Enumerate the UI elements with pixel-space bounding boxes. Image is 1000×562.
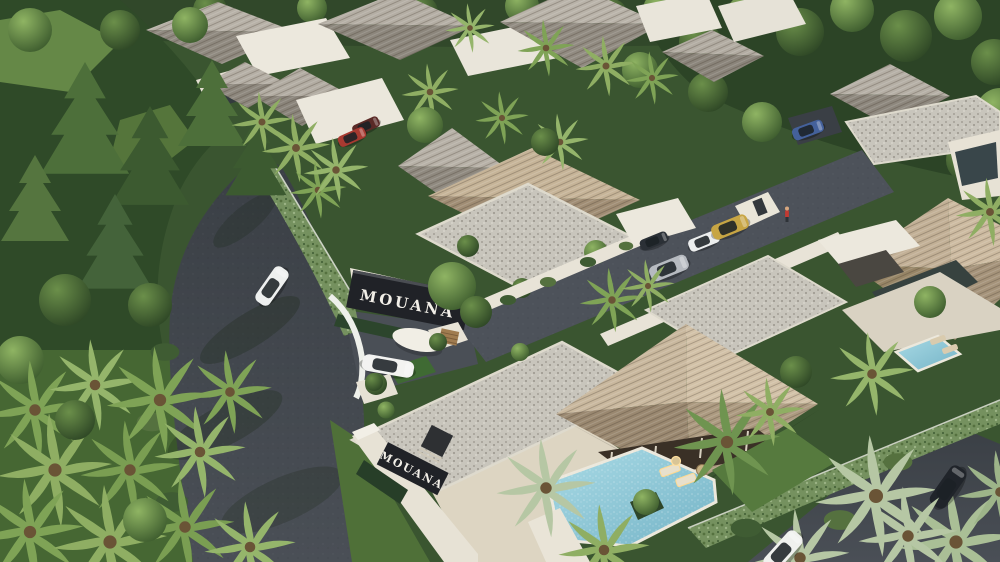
bush (731, 519, 762, 538)
planter-tree (378, 402, 395, 419)
aerial-render: MOUANA MOUANA (0, 0, 1000, 562)
tree (880, 10, 932, 62)
hedge-bush (500, 295, 516, 305)
hedge-bush (580, 257, 596, 267)
roof-tree (457, 235, 479, 257)
pedestrian (785, 207, 789, 223)
tree (172, 7, 208, 43)
gate-tree (460, 296, 492, 328)
hedge-bush (619, 242, 633, 251)
planter-tree (511, 343, 529, 361)
tree (100, 10, 140, 50)
tree (780, 356, 812, 388)
tree (407, 107, 443, 143)
scene-svg: MOUANA MOUANA (0, 0, 1000, 562)
tree (55, 400, 95, 440)
tree (8, 8, 52, 52)
pool-tree (633, 489, 659, 515)
planter-tree (365, 373, 383, 391)
tree (39, 274, 91, 326)
planter-tree (429, 333, 447, 351)
hedge-bush (540, 277, 556, 287)
tree (123, 498, 167, 542)
tree (742, 102, 782, 142)
parasol-lit (672, 457, 681, 466)
tree (914, 286, 946, 318)
tree (128, 283, 172, 327)
tree (531, 128, 559, 156)
